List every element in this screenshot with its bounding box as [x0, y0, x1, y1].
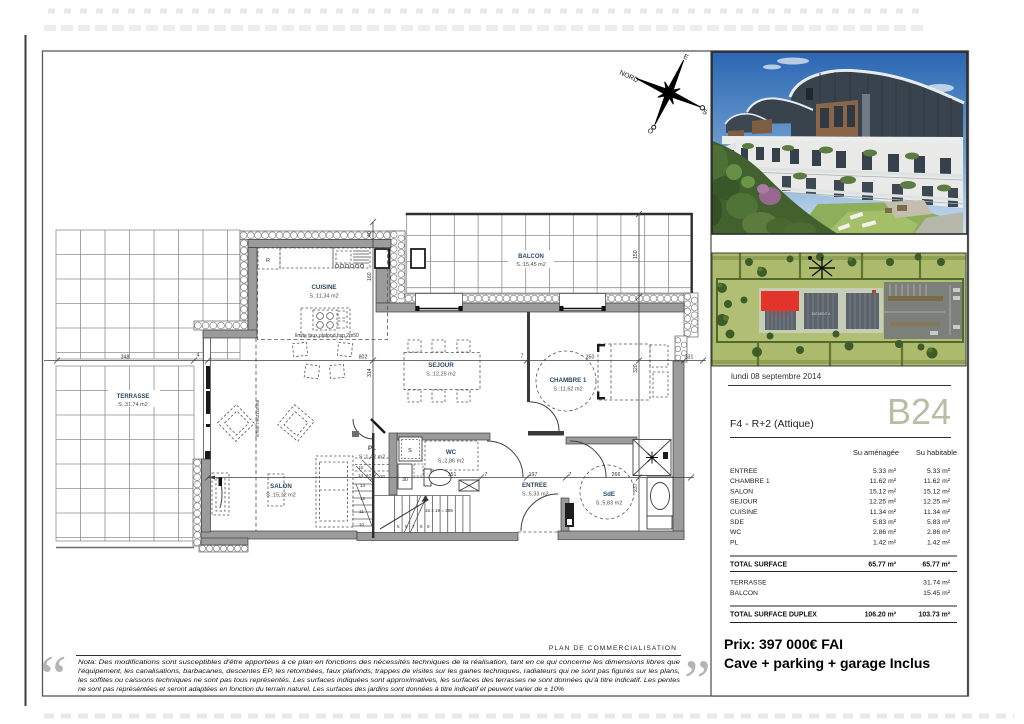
svg-text:S.:15,45 m2: S.:15,45 m2	[516, 262, 546, 268]
svg-text:PLAN DE COMMERCIALISATION: PLAN DE COMMERCIALISATION	[549, 645, 677, 652]
svg-text:15.12 m²: 15.12 m²	[923, 488, 951, 495]
svg-text:B24: B24	[887, 391, 951, 432]
svg-text:7: 7	[569, 472, 572, 478]
svg-text:5.33 m²: 5.33 m²	[927, 468, 951, 475]
svg-text:6: 6	[405, 524, 408, 529]
svg-text:11.34 m²: 11.34 m²	[870, 509, 897, 516]
svg-text:TOTAL SURFACE DUPLEX: TOTAL SURFACE DUPLEX	[730, 612, 817, 619]
svg-text:CUISINE: CUISINE	[311, 284, 336, 291]
svg-text:2.86 m²: 2.86 m²	[927, 529, 951, 536]
svg-text:20: 20	[380, 474, 386, 479]
svg-text:SALON: SALON	[270, 483, 292, 490]
svg-text:“: “	[40, 644, 67, 710]
svg-text:SDE: SDE	[730, 519, 744, 526]
svg-text:S.:11,34 m2: S.:11,34 m2	[309, 294, 338, 300]
svg-text:65.77 m²: 65.77 m²	[922, 562, 950, 569]
svg-text:15: 15	[358, 465, 364, 470]
svg-text:CHAMBRE 1: CHAMBRE 1	[730, 478, 770, 485]
svg-text:NORD: NORD	[618, 69, 639, 84]
svg-text:11.62 m²: 11.62 m²	[870, 478, 897, 485]
svg-text:limite mezzanine: limite mezzanine	[255, 400, 261, 437]
svg-text:PL: PL	[730, 539, 739, 546]
svg-text:ENTREE: ENTREE	[730, 468, 758, 475]
svg-text:S.:2,86 m2: S.:2,86 m2	[438, 459, 465, 465]
svg-text:150: 150	[633, 250, 639, 259]
svg-text:12.25 m²: 12.25 m²	[869, 499, 897, 506]
svg-text:40: 40	[367, 231, 373, 237]
svg-text:S: S	[408, 448, 412, 454]
svg-text:ne sont pas représéntées et se: ne sont pas représéntées et seront adapt…	[78, 686, 565, 693]
svg-text:5.33 m²: 5.33 m²	[873, 468, 897, 475]
svg-text:”: ”	[684, 648, 711, 714]
svg-text:7: 7	[485, 472, 488, 478]
svg-text:BATIMENT A: BATIMENT A	[812, 312, 832, 316]
svg-text:O: O	[646, 127, 654, 136]
svg-text:314: 314	[367, 368, 373, 377]
svg-text:10: 10	[359, 522, 365, 527]
svg-text:8: 8	[420, 524, 423, 529]
svg-text:Cave + parking + garage Inclus: Cave + parking + garage Inclus	[724, 655, 930, 671]
svg-text:BALCON: BALCON	[518, 254, 544, 260]
svg-text:103.73 m²: 103.73 m²	[919, 612, 951, 619]
svg-text:BALCON: BALCON	[730, 590, 758, 597]
svg-text:65.77 m²: 65.77 m²	[868, 562, 896, 569]
svg-text:5.83 m²: 5.83 m²	[927, 519, 951, 526]
svg-text:802: 802	[359, 355, 368, 361]
svg-text:ENTREE: ENTREE	[522, 482, 547, 489]
svg-text:13: 13	[360, 483, 366, 488]
svg-text:320: 320	[633, 364, 639, 373]
svg-text:11: 11	[359, 509, 364, 514]
svg-text:CUISINE: CUISINE	[730, 509, 758, 516]
svg-text:TERRASSE: TERRASSE	[117, 394, 150, 400]
svg-text:WC: WC	[730, 529, 741, 536]
svg-text:15.12 m²: 15.12 m²	[869, 488, 897, 495]
svg-text:F4 - R+2 (Attique): F4 - R+2 (Attique)	[730, 418, 814, 430]
svg-text:9: 9	[427, 524, 430, 529]
svg-text:15.45 m²: 15.45 m²	[923, 590, 951, 597]
svg-text:S.:12,25 m2: S.:12,25 m2	[426, 372, 456, 378]
svg-text:12: 12	[360, 496, 366, 501]
svg-text:PL: PL	[368, 445, 376, 452]
svg-text:5.83 m²: 5.83 m²	[873, 519, 897, 526]
svg-text:Su aménagée: Su aménagée	[853, 448, 899, 457]
svg-text:WC: WC	[446, 449, 457, 456]
svg-text:SEJOUR: SEJOUR	[428, 362, 454, 369]
svg-text:106.20 m²: 106.20 m²	[865, 612, 897, 619]
svg-text:TOTAL SURFACE: TOTAL SURFACE	[730, 562, 787, 569]
svg-text:11.34 m²: 11.34 m²	[924, 509, 951, 516]
svg-text:266: 266	[612, 472, 621, 478]
svg-text:SEJOUR: SEJOUR	[730, 499, 758, 506]
svg-text:S.:5,33 m2: S.:5,33 m2	[522, 492, 549, 498]
svg-text:160: 160	[367, 272, 373, 281]
svg-text:7: 7	[521, 354, 524, 360]
svg-text:SALON: SALON	[730, 488, 753, 495]
svg-text:BATIMENT B: BATIMENT B	[771, 312, 790, 316]
svg-text:31.74 m²: 31.74 m²	[923, 580, 951, 587]
svg-text:Prix: 397 000€ FAI: Prix: 397 000€ FAI	[724, 636, 843, 652]
svg-text:S.:5,83 m2: S.:5,83 m2	[596, 501, 623, 507]
svg-text:S.:11,62 m2: S.:11,62 m2	[553, 387, 582, 393]
svg-text:1.42 m²: 1.42 m²	[927, 539, 951, 546]
svg-text:les soffites ou caissons techn: les soffites ou caissons techniques ne s…	[78, 677, 680, 684]
svg-text:11.62 m²: 11.62 m²	[924, 478, 951, 485]
svg-text:197: 197	[529, 472, 538, 478]
svg-text:SdE: SdE	[603, 491, 615, 498]
svg-text:350: 350	[586, 355, 595, 361]
svg-text:12.25 m²: 12.25 m²	[923, 499, 951, 506]
svg-text:Su habitable: Su habitable	[916, 448, 957, 457]
svg-text:R: R	[266, 258, 270, 264]
svg-text:lundi 08 septembre 2014: lundi 08 septembre 2014	[731, 372, 822, 381]
svg-text:237: 237	[633, 483, 639, 492]
svg-text:4: 4	[197, 353, 200, 359]
svg-text:1.42 m²: 1.42 m²	[873, 539, 897, 546]
svg-text:331: 331	[685, 355, 694, 361]
svg-text:Nota: Des modifications sont s: Nota: Des modifications sont susceptible…	[78, 659, 681, 666]
svg-text:CHAMBRE 1: CHAMBRE 1	[550, 377, 587, 384]
svg-text:2.86 m²: 2.86 m²	[873, 529, 897, 536]
svg-text:TERRASSE: TERRASSE	[730, 580, 767, 587]
svg-text:S.:1,42 m2: S.:1,42 m2	[359, 455, 386, 461]
svg-text:5: 5	[397, 524, 400, 529]
svg-text:7: 7	[412, 524, 415, 529]
svg-text:151: 151	[448, 472, 457, 478]
svg-text:15 x 19 = 286: 15 x 19 = 286	[425, 508, 453, 513]
svg-text:S.:31,74 m2: S.:31,74 m2	[118, 402, 148, 408]
svg-text:S.:15,12 m2: S.:15,12 m2	[266, 493, 296, 499]
svg-text:348: 348	[121, 355, 130, 361]
svg-text:l'équipement, les canalisation: l'équipement, les canalisations, barbaca…	[78, 668, 680, 675]
svg-text:limite faux plafond hsp 2m50: limite faux plafond hsp 2m50	[295, 333, 359, 339]
